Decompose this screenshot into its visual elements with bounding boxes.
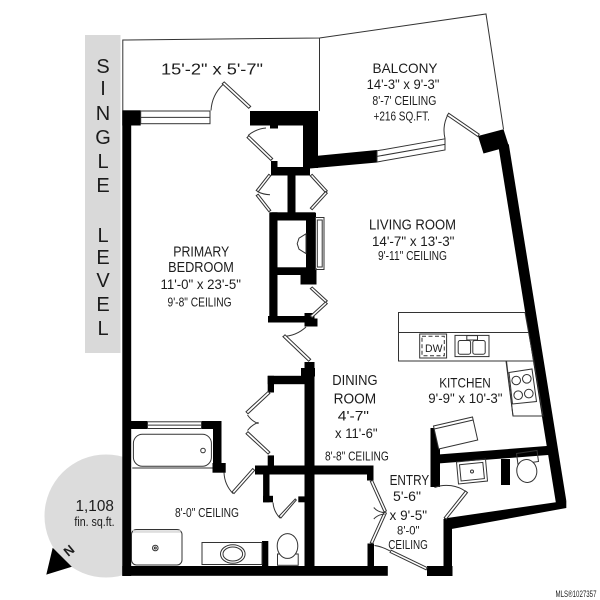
svg-text:V: V <box>96 270 110 292</box>
svg-text:9'-9" x 10'-3": 9'-9" x 10'-3" <box>428 390 502 406</box>
svg-text:N: N <box>96 103 110 125</box>
svg-text:fin. sq.ft.: fin. sq.ft. <box>74 515 114 529</box>
svg-text:DINING: DINING <box>332 373 377 389</box>
svg-text:+216 SQ.FT.: +216 SQ.FT. <box>374 109 430 123</box>
svg-text:L: L <box>97 318 108 340</box>
svg-text:E: E <box>96 247 109 269</box>
svg-text:PRIMARY: PRIMARY <box>173 244 229 260</box>
svg-text:S: S <box>96 56 109 78</box>
svg-text:15'-2" x 5'-7": 15'-2" x 5'-7" <box>161 62 263 79</box>
svg-text:G: G <box>95 127 111 149</box>
svg-text:I: I <box>100 78 106 100</box>
svg-text:8'-0": 8'-0" <box>397 524 420 538</box>
svg-text:9'-8" CEILING: 9'-8" CEILING <box>168 295 232 309</box>
svg-text:E: E <box>96 294 109 316</box>
svg-text:ROOM: ROOM <box>334 391 377 407</box>
svg-text:8'-8" CEILING: 8'-8" CEILING <box>325 450 389 464</box>
svg-text:BEDROOM: BEDROOM <box>168 260 234 276</box>
svg-text:4'-7": 4'-7" <box>338 407 369 423</box>
svg-text:LIVING ROOM: LIVING ROOM <box>369 216 456 233</box>
svg-text:MLS®1027357: MLS®1027357 <box>556 589 597 599</box>
svg-text:L: L <box>97 151 108 173</box>
svg-text:11'-0" x 23'-5": 11'-0" x 23'-5" <box>161 276 241 292</box>
svg-text:E: E <box>96 175 109 197</box>
svg-text:ENTRY: ENTRY <box>390 472 430 489</box>
svg-text:x 9'-5": x 9'-5" <box>390 507 428 523</box>
svg-text:14'-3" x 9'-3": 14'-3" x 9'-3" <box>367 77 440 92</box>
svg-text:5'-6": 5'-6" <box>393 488 421 504</box>
svg-text:14'-7" x 13'-3": 14'-7" x 13'-3" <box>372 233 455 249</box>
svg-text:1,108: 1,108 <box>76 498 114 515</box>
svg-text:DW: DW <box>425 343 443 355</box>
svg-text:BALCONY: BALCONY <box>373 60 439 76</box>
svg-text:8'-0" CEILING: 8'-0" CEILING <box>175 506 239 520</box>
svg-text:L: L <box>97 225 108 247</box>
svg-text:KITCHEN: KITCHEN <box>439 375 491 391</box>
svg-text:CEILING: CEILING <box>388 538 428 552</box>
svg-text:x 11'-6": x 11'-6" <box>335 425 378 441</box>
svg-text:9'-11" CEILING: 9'-11" CEILING <box>378 249 447 263</box>
svg-text:8'-7' CEILING: 8'-7' CEILING <box>372 94 436 108</box>
